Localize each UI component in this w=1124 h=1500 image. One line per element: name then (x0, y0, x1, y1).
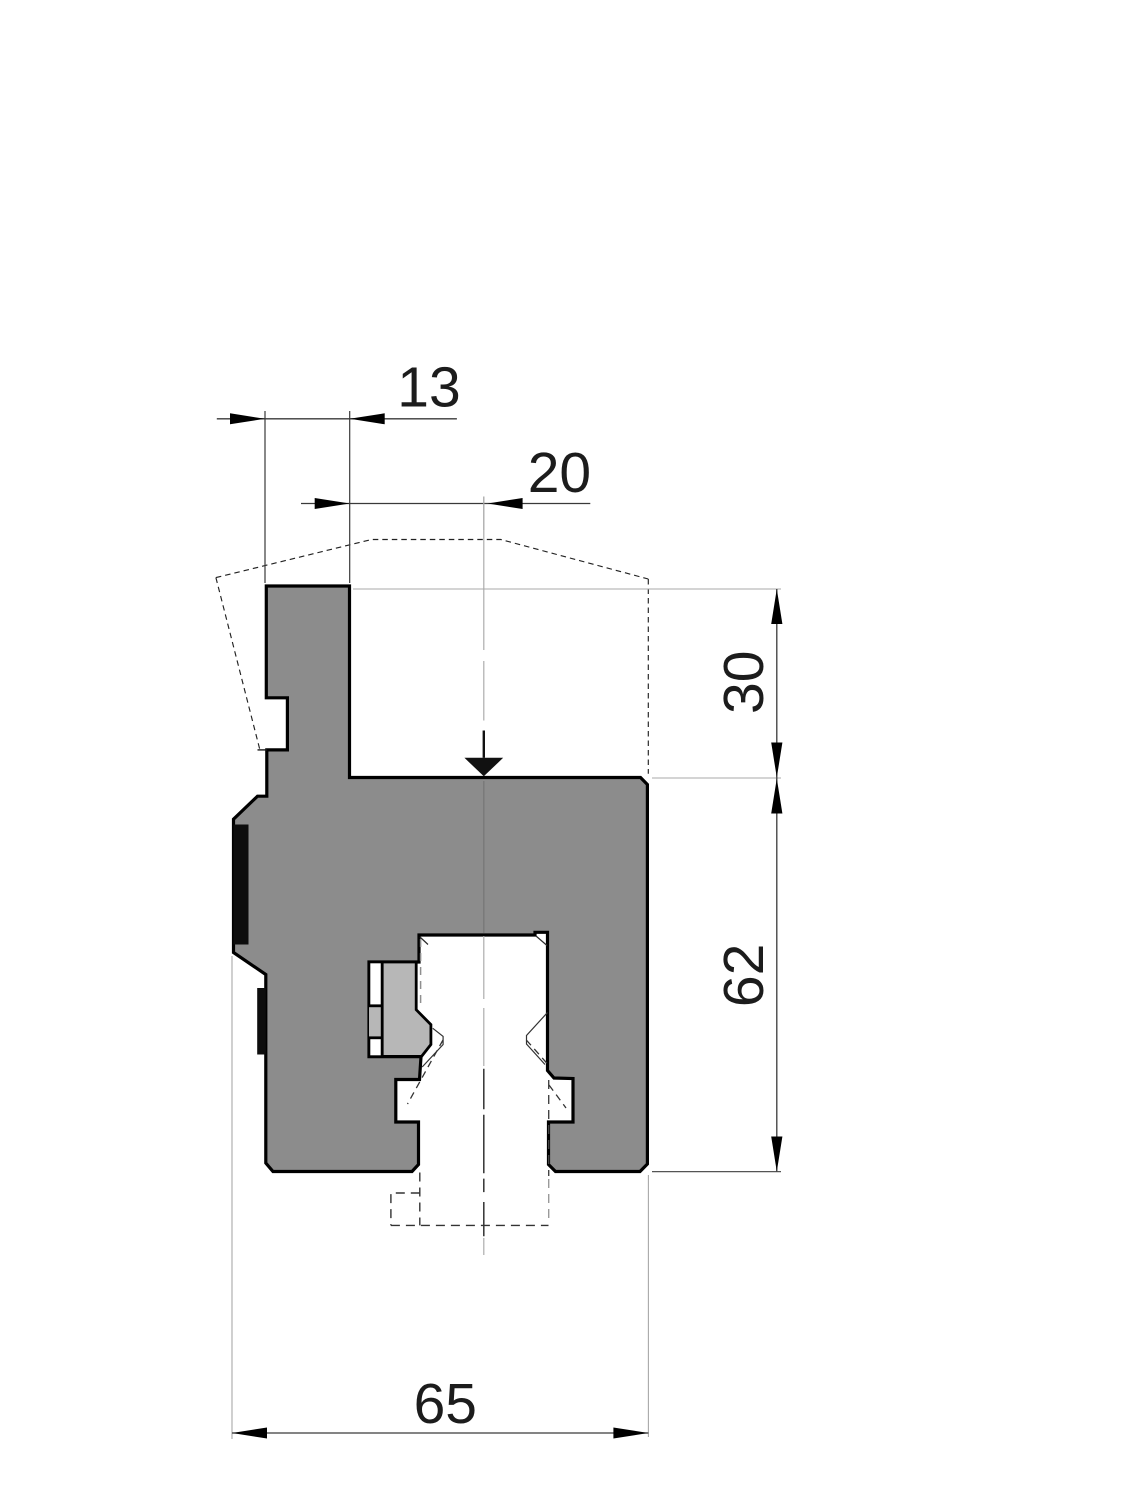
svg-text:62: 62 (712, 944, 776, 1007)
svg-text:13: 13 (397, 356, 460, 420)
svg-text:20: 20 (528, 441, 591, 505)
svg-text:65: 65 (414, 1372, 477, 1436)
svg-text:30: 30 (712, 651, 776, 714)
